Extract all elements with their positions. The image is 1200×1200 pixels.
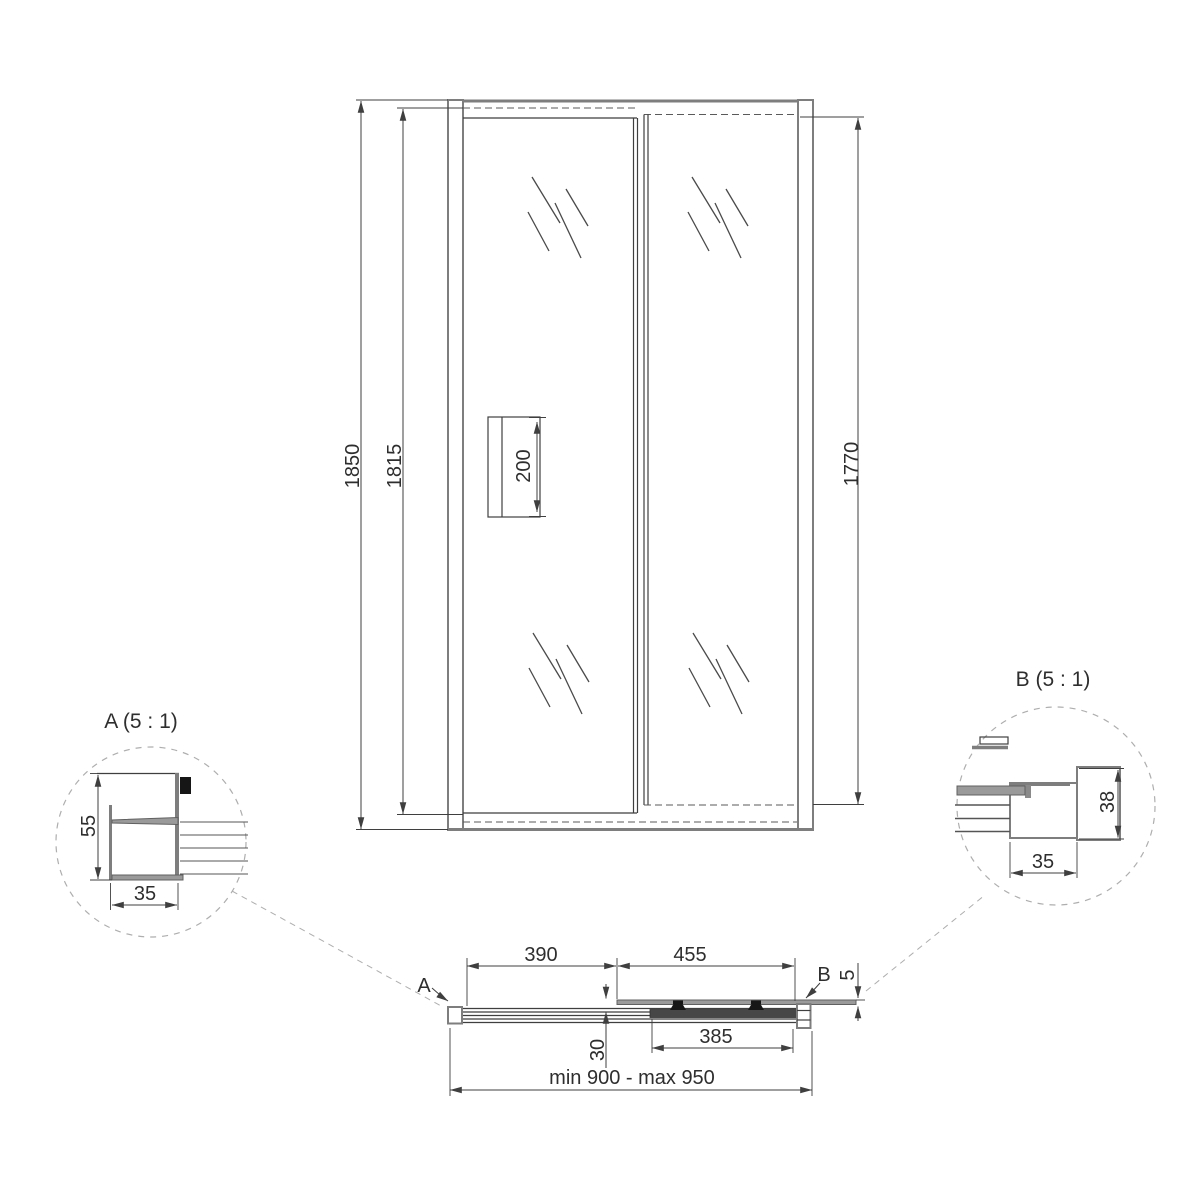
front-view-dimensions: 1850 1815 1770 200 [342,100,864,830]
detail-a-dimensions: 55 35 [78,774,178,911]
dim-overall-height: 1850 [342,444,364,489]
detail-a-title: A (5 : 1) [104,710,178,733]
dim-door-glass: 385 [699,1026,732,1048]
shower-door-drawing: 1850 1815 1770 200 [0,0,1200,1200]
detail-b: B (5 : 1) 38 35 [955,668,1155,905]
dim-glass-height: 1770 [841,442,863,487]
detail-callouts: A B [232,891,985,1007]
dim-handle-length: 200 [513,449,535,482]
fixed-glass-panel-plan [617,1000,856,1005]
left-wall-profile-plan [448,1007,462,1024]
dim-opening-height: 1815 [384,444,406,489]
right-wall-profile [798,100,813,830]
front-view: 1850 1815 1770 200 [342,100,864,830]
detail-b-depth: 38 [1097,791,1119,813]
detail-a: A (5 : 1) 55 35 [56,710,248,937]
dim-fixed-segment: 390 [524,944,557,966]
technical-drawing-page: 1850 1815 1770 200 [0,0,1200,1200]
sliding-glass-panel-plan [650,1010,797,1018]
detail-a-leader [232,891,443,1007]
dim-glass-thickness: 5 [837,969,859,980]
door-frame [448,100,813,830]
glass-hatch-marks [528,177,749,714]
dim-door-segment: 455 [673,944,706,966]
dim-panel-offset: 30 [587,1039,609,1061]
right-wall-profile-plan [797,1004,811,1028]
detail-a-width: 35 [134,883,156,905]
left-wall-profile [448,100,463,830]
detail-a-circle [56,747,246,937]
dim-width-range: min 900 - max 950 [549,1067,715,1089]
detail-b-width: 35 [1032,851,1054,873]
detail-b-profile [955,737,1120,840]
detail-b-leader [866,895,985,991]
detail-b-title: B (5 : 1) [1016,668,1091,691]
detail-a-profile [97,773,248,880]
plan-view: 390 455 5 30 385 min 900 - max 950 A B [232,891,985,1096]
detail-a-depth: 55 [78,815,100,837]
detail-a-bracket [180,777,191,794]
callout-b-label: B [817,964,830,986]
